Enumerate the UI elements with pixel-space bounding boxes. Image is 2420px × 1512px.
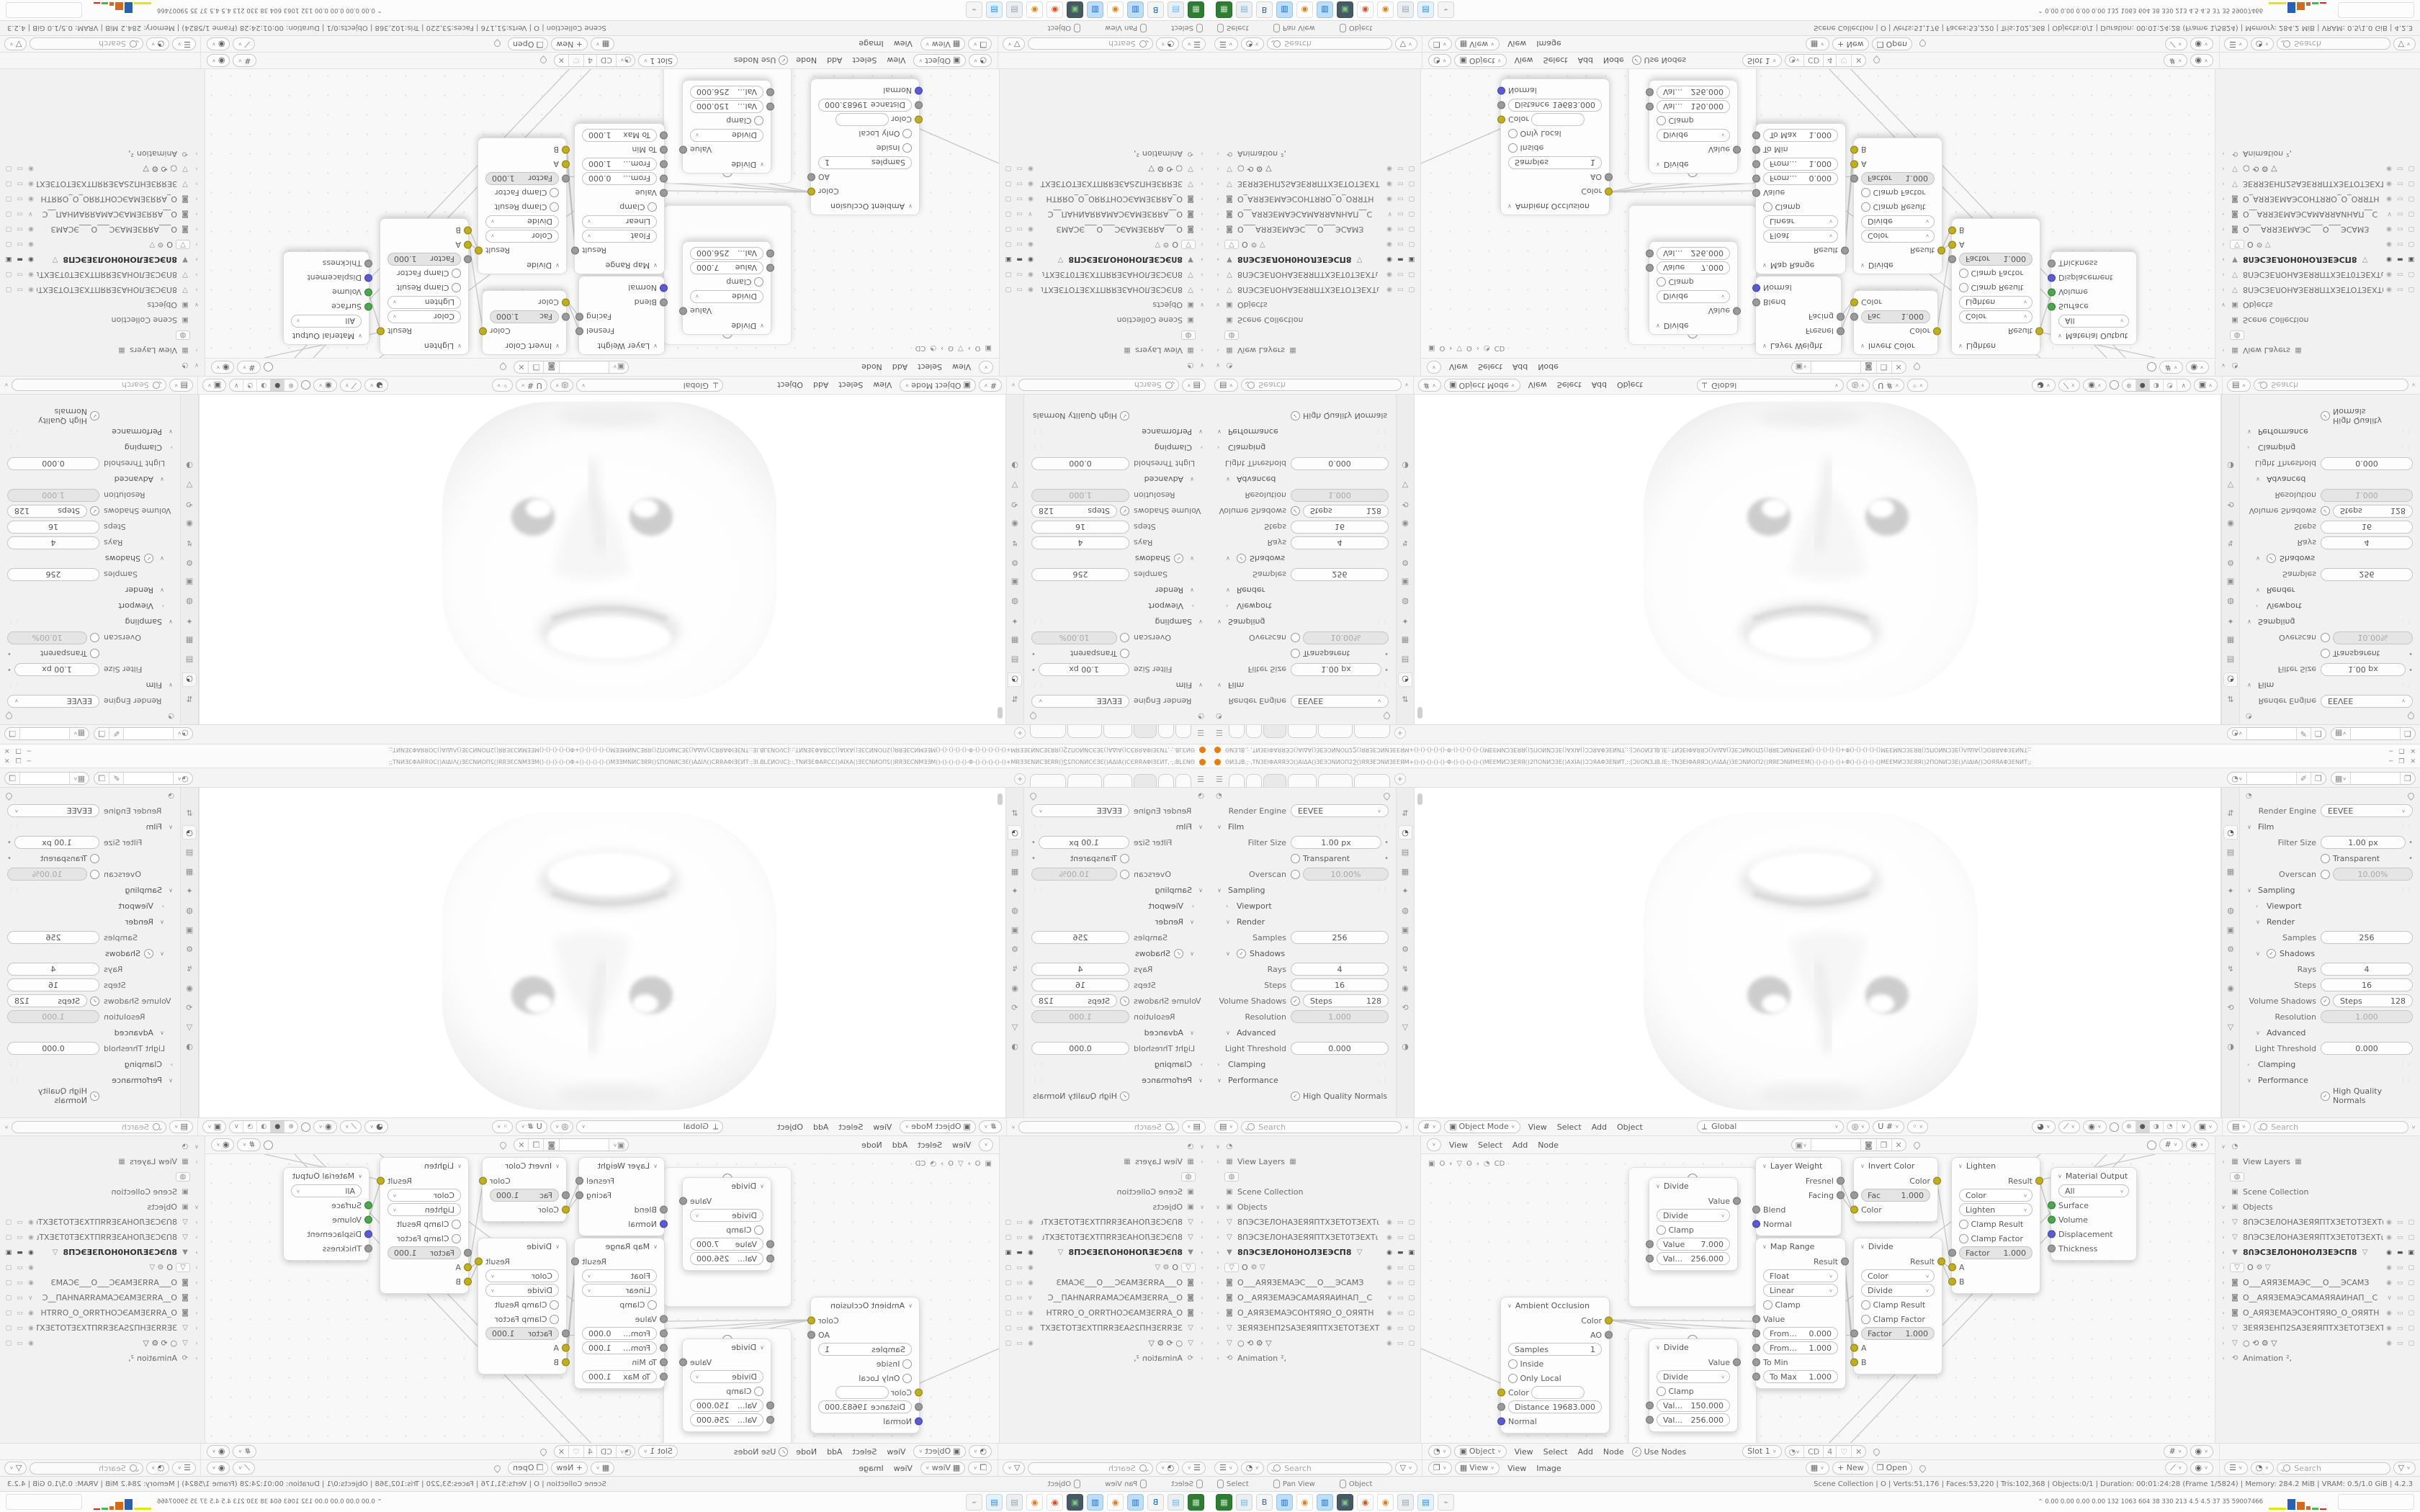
node-checkbox[interactable] [647, 1300, 657, 1310]
expand-caret-icon[interactable]: › [2220, 1295, 2227, 1301]
camera-icon[interactable]: ▢ [2408, 1295, 2414, 1302]
node-footer-menu-node[interactable]: Node [796, 56, 817, 66]
display-mode-button[interactable]: ☰∨ [1214, 37, 1238, 50]
outliner-row-mesh[interactable]: ›▽ЗЕЯЯЗЕНП2SАЗЕЯЯПТХЗЕТОТЗЕХТ◉▭▢ [3, 1320, 200, 1336]
camera-icon[interactable]: ▢ [1408, 196, 1415, 203]
document-app-icon[interactable]: ▤ [1236, 1494, 1252, 1511]
viewport-menu-view[interactable]: View [1528, 1122, 1547, 1132]
outliner-row-camera[interactable]: ›◙O___АЯЯЗЕМАЭС___О___ЭСАМЗ◉▭▢ [2220, 1275, 2417, 1290]
window-button-maximize[interactable]: ❐ [16, 758, 22, 765]
camera-icon[interactable]: ▢ [2408, 1219, 2414, 1226]
archive-app-icon[interactable]: ▤ [1417, 1494, 1434, 1511]
expand-caret-icon[interactable]: › [1214, 347, 1222, 354]
properties-tab-2[interactable]: ▤ [2224, 654, 2237, 667]
collapse-caret-icon[interactable]: ∨ [457, 343, 462, 350]
node-checkbox[interactable] [1508, 144, 1518, 153]
node-field[interactable]: Fac1.000 [490, 1189, 559, 1202]
socket-gray[interactable] [2048, 1245, 2056, 1253]
node-menu-view[interactable]: View [1449, 1140, 1468, 1150]
socket-yellow[interactable] [1605, 188, 1613, 196]
collapse-caret-icon[interactable]: ∨ [1860, 1243, 1865, 1250]
camera-icon[interactable]: ▢ [1005, 271, 1012, 279]
section-caret-icon[interactable]: ∨ [1196, 824, 1203, 830]
socket-gray[interactable] [660, 1315, 668, 1323]
screen-icon[interactable]: ▭ [1017, 1279, 1023, 1287]
add-workspace-button[interactable]: + [1014, 773, 1026, 785]
properties-tab-5[interactable]: ◍ [2224, 904, 2237, 917]
workspace-tab-1[interactable] [1158, 725, 1174, 738]
properties-tab-1[interactable]: ◔ [183, 673, 196, 686]
prop-field[interactable]: 16 [1291, 978, 1389, 991]
visibility-toggles[interactable]: ∨▭▢ [1387, 1295, 1417, 1302]
overlays-button[interactable]: ◉∨ [2190, 1445, 2213, 1458]
hide-eye-icon[interactable]: ◉ [28, 241, 34, 248]
workspace-tab-2[interactable] [1263, 725, 1286, 738]
visibility-gizmos-button[interactable]: ◕∨ [364, 379, 387, 392]
viewlayer-datablock[interactable]: ▦∨❐ [4, 727, 89, 740]
outliner-row-camera[interactable]: ›◙O_АЯЯЗЕМАЭСОНТЯЯО_О_ОЯЯТН◉▭▢ [2220, 1305, 2417, 1320]
socket-yellow[interactable] [1850, 1359, 1858, 1367]
node-field[interactable]: To Max1.000 [582, 1370, 657, 1383]
pin-icon[interactable] [1382, 711, 1391, 721]
node-field[interactable]: Value7.000 [1657, 261, 1730, 274]
node-enum[interactable]: Lighten∨ [1959, 296, 2033, 309]
collapse-caret-icon[interactable]: ∨ [1507, 204, 1512, 210]
viewport-menu-select[interactable]: Select [838, 1122, 863, 1132]
node-editor-menus[interactable]: ViewSelectAddNode [856, 1140, 976, 1150]
expand-caret-icon[interactable]: › [193, 241, 200, 248]
workspace-tab-2[interactable] [1263, 774, 1286, 787]
viewport-menu-add[interactable]: Add [1592, 1122, 1607, 1132]
properties-tab-12[interactable]: ◑ [183, 459, 196, 472]
node-ambient-occlusion[interactable]: ∨Ambient OcclusionColorAOSamples1 Inside… [810, 78, 920, 215]
socket-yellow[interactable] [464, 227, 472, 235]
prop-enum[interactable]: EEVEE∨ [1031, 695, 1129, 708]
expand-caret-icon[interactable]: ∨ [1214, 302, 1222, 308]
node-enum[interactable]: Color∨ [1861, 1269, 1935, 1282]
properties-tab-4[interactable]: ✦ [2224, 615, 2237, 628]
filter-owner-button[interactable]: ◔∨ [146, 37, 169, 50]
screen-icon[interactable]: ▭ [2397, 166, 2403, 173]
notes-app-icon[interactable]: ▤ [1006, 1494, 1023, 1511]
socket-gray[interactable] [1733, 1197, 1741, 1205]
workspace-tab-5[interactable] [1030, 774, 1066, 787]
image-view-dropdown[interactable]: ▦ View∨ [920, 1462, 965, 1475]
outliner-row-camera[interactable]: ›◙O___АЯЯЗЕМАЭС___О___ЭСАМЗ◉▭▢ [2220, 222, 2417, 237]
screen-icon[interactable]: ▭ [2397, 287, 2403, 294]
expand-caret-icon[interactable]: › [1214, 1249, 1222, 1256]
prop-enum[interactable]: EEVEE∨ [7, 695, 99, 708]
collapse-caret-icon[interactable]: ∨ [1762, 1163, 1767, 1169]
node-enum[interactable]: Float∨ [582, 1269, 657, 1282]
screen-icon[interactable]: ▭ [1017, 1295, 1023, 1302]
hide-eye-icon[interactable]: ◉ [2386, 226, 2392, 233]
window-button-minimize[interactable]: ─ [2389, 758, 2393, 765]
outliner-row-mesh[interactable]: ›▽○ ⟲ ⚙ ▽◉▭▢ [1214, 161, 1417, 176]
window-button-maximize[interactable]: ❐ [2398, 747, 2404, 754]
properties-tab-4[interactable]: ✦ [1399, 884, 1412, 897]
socket-gray[interactable] [1752, 132, 1760, 140]
socket-gray[interactable] [1646, 103, 1654, 111]
node-divide[interactable]: ∨DivideValueDivide∨ ClampValue7.000Val..… [1649, 241, 1738, 335]
node-enum[interactable]: Divide∨ [1657, 129, 1730, 142]
expand-caret-icon[interactable]: › [1198, 1295, 1206, 1301]
outliner-row-mesh[interactable]: ›▽ЗЕЯЯЗЕНП2SАЗЕЯЯПТХЗЕТОТЗЕХТ◉▭▢ [2220, 1320, 2417, 1336]
section-caret-icon[interactable]: ∨ [2256, 588, 2263, 594]
collapse-caret-icon[interactable]: ∨ [1762, 263, 1767, 269]
prop-field[interactable]: Steps128 [1031, 505, 1117, 518]
node-divide[interactable]: ∨DivideValueDivide∨ ClampVal...150.000Va… [682, 80, 771, 174]
collapse-caret-icon[interactable]: ∨ [1656, 162, 1660, 168]
hide-eye-icon[interactable]: ◉ [1028, 271, 1034, 279]
overlays-button[interactable]: ◉∨ [207, 37, 230, 50]
node-field[interactable]: Factor1.000 [485, 172, 559, 185]
node-menu-view[interactable]: View [952, 1140, 971, 1150]
editor-type-button[interactable]: #∨ [979, 1120, 1002, 1133]
socket-yellow[interactable] [464, 241, 472, 249]
properties-tab-11[interactable]: ▽ [1399, 1020, 1412, 1033]
snap-magnet-button[interactable]: U #∨ [516, 379, 547, 392]
node-checkbox[interactable] [1763, 203, 1773, 212]
visibility-toggles[interactable]: ◉▭▢ [3, 1219, 34, 1226]
expand-caret-icon[interactable]: › [1198, 181, 1206, 187]
scene-datablock[interactable]: ◔∨✐❐ [94, 772, 193, 785]
camera-icon[interactable]: ▢ [2408, 1264, 2414, 1272]
properties-tab-9[interactable]: ◉ [2224, 518, 2237, 531]
open-image-button[interactable]: ❒ Open [508, 1462, 548, 1475]
camera-icon[interactable]: ▢ [1408, 181, 1415, 188]
window-button-maximize[interactable]: ❐ [2398, 758, 2404, 765]
properties-tab-5[interactable]: ◍ [2224, 595, 2237, 608]
screen-icon[interactable]: ▭ [1397, 181, 1404, 188]
outliner-row-mesh-sel[interactable]: ›▽O⚙ ▽◉▭▢ [2220, 1260, 2417, 1275]
section-caret-icon[interactable]: › [2247, 445, 2254, 451]
section-caret-icon[interactable]: ∨ [1187, 556, 1194, 562]
overlays-button[interactable]: ◉∨ [2186, 361, 2209, 374]
blender-app-icon[interactable]: ◉ [1107, 1494, 1124, 1511]
camera-icon[interactable]: ▢ [6, 241, 12, 248]
section-caret-icon[interactable]: ∨ [2247, 429, 2254, 436]
notes-app-icon[interactable]: ▤ [1397, 2, 1414, 19]
node-field[interactable]: Fac1.000 [1861, 310, 1930, 323]
camera-icon[interactable]: ▢ [2408, 241, 2414, 248]
outliner-row-mesh[interactable]: ›▽8ՈЭСЗЕЛОНАЗЕЯЯПТХЗЕТ0ТЗЕХТι◉▭▢ [1214, 1230, 1417, 1245]
overlays-button[interactable]: ◉∨ [2190, 1462, 2213, 1475]
workspace-tab-2[interactable] [1134, 774, 1157, 787]
taskbar-app-icons[interactable]: ▦▤B▥◉▥▣◉◉▤▤⌁ [1216, 1494, 1454, 1511]
section-caret-icon[interactable]: ∨ [2247, 683, 2254, 689]
prop-field[interactable]: 4 [1291, 963, 1389, 976]
prop-field[interactable]: 10.00% [1031, 868, 1117, 881]
hide-eye-icon[interactable]: ◉ [1028, 196, 1034, 203]
collapse-caret-icon[interactable]: ∨ [2058, 333, 2062, 340]
hide-eye-icon[interactable]: ◉ [1028, 1219, 1034, 1226]
visibility-toggles[interactable]: ◉▬▣ [3, 1249, 34, 1256]
shading-mode-0[interactable]: ⊕ [284, 379, 297, 391]
prop-field[interactable]: Steps128 [2333, 505, 2413, 518]
node-footer-menu-add[interactable]: Add [827, 1447, 842, 1457]
hide-eye-icon[interactable]: ◉ [28, 1219, 34, 1226]
prop-checkbox[interactable] [1120, 854, 1129, 863]
window-button-maximize[interactable]: ❐ [16, 747, 22, 754]
workspace-tab-4[interactable] [1318, 725, 1353, 738]
properties-tab-0[interactable]: ⇵ [183, 806, 196, 819]
collapse-caret-icon[interactable]: ∨ [760, 1183, 764, 1189]
section-caret-icon[interactable]: ∨ [1217, 619, 1224, 626]
node-checkbox[interactable] [452, 284, 461, 293]
socket-gray[interactable] [1850, 1330, 1858, 1338]
animate-dot[interactable]: • [2408, 666, 2413, 674]
prop-field[interactable]: 0.000 [7, 1042, 99, 1055]
socket-gray[interactable] [807, 174, 815, 181]
outliner-row-mesh[interactable]: ›▽○ ⟲ ⚙ ▽◉▭▢ [1003, 161, 1206, 176]
expand-caret-icon[interactable]: ∨ [193, 362, 200, 369]
section-caret-icon[interactable]: ∨ [1187, 950, 1194, 957]
viewport-3d[interactable] [199, 788, 1005, 1117]
animate-dot[interactable]: • [7, 839, 12, 847]
prop-field[interactable]: 10.00% [2333, 868, 2413, 881]
prop-enum[interactable]: EEVEE∨ [1291, 804, 1389, 817]
expand-caret-icon[interactable]: › [1198, 1279, 1206, 1286]
visibility-toggles[interactable]: ◉▭▢ [3, 181, 34, 188]
terminal-app-icon[interactable]: ▦ [1216, 1494, 1232, 1511]
outliner-row-mesh-sel[interactable]: ›▽O⚙ ▽◉▭▢ [1214, 237, 1417, 252]
properties-tab-8[interactable]: ↯ [2224, 962, 2237, 975]
shading-dropdown-button[interactable]: ▣∨ [202, 379, 226, 392]
screen-icon[interactable]: ▭ [17, 1279, 24, 1287]
socket-gray[interactable] [660, 1359, 668, 1367]
shader-context-dropdown[interactable]: ▣ Object∨ [1454, 1445, 1506, 1458]
shading-mode-3[interactable]: ◔ [2164, 379, 2177, 391]
visibility-toggles[interactable]: ◉▭▢ [1003, 226, 1034, 233]
socket-gray[interactable] [1733, 307, 1741, 315]
section-caret-icon[interactable]: › [1196, 445, 1203, 451]
camera-icon[interactable]: ▢ [1408, 1264, 1415, 1272]
properties-tabstrip-left[interactable]: ⇵◔▤▦✦◍▣⚙↯◉⟲▽◑ [1005, 395, 1023, 724]
node-field[interactable]: Samples1 [818, 1343, 912, 1356]
outliner-row-camera[interactable]: ›◙O__АЯЯЗЕМАЭСАМАЯЯАИНАП__С∨▭▢ [2220, 207, 2417, 222]
socket-gray[interactable] [364, 260, 372, 268]
expand-caret-icon[interactable]: › [1214, 1310, 1222, 1316]
screen-icon[interactable]: ▭ [2397, 211, 2403, 218]
properties-tab-8[interactable]: ↯ [1008, 537, 1021, 550]
properties-tab-7[interactable]: ⚙ [2224, 557, 2237, 570]
camera-icon[interactable]: ▢ [2408, 211, 2414, 218]
tray-widget[interactable] [2338, 1494, 2414, 1510]
hide-eye-icon[interactable]: ◉ [1386, 1279, 1392, 1287]
animate-dot[interactable]: • [7, 650, 12, 658]
collapse-caret-icon[interactable]: ∨ [908, 204, 913, 210]
node-editor-menus[interactable]: ViewSelectAddNode [1444, 363, 1564, 372]
expand-caret-icon[interactable]: › [2220, 181, 2227, 187]
hide-eye-icon[interactable]: ◉ [1386, 1219, 1392, 1226]
node-layer-weight[interactable]: ∨Layer WeightFresnelFacingBlendNormal [1755, 1157, 1842, 1236]
node-checkbox[interactable] [1959, 1234, 1968, 1243]
firefox-app-icon[interactable]: ◉ [1047, 1494, 1063, 1511]
screen-icon[interactable]: ▭ [17, 271, 24, 279]
editor-type-button[interactable]: ▤∨ [1214, 379, 1238, 392]
section-caret-icon[interactable]: › [2256, 603, 2263, 610]
camera-icon[interactable]: ▣ [2408, 256, 2414, 264]
expand-caret-icon[interactable]: › [1198, 166, 1206, 172]
section-caret-icon[interactable]: ∨ [1187, 1030, 1194, 1036]
node-checkbox[interactable] [902, 130, 912, 139]
prop-checkbox[interactable] [2321, 870, 2330, 879]
properties-tab-6[interactable]: ▣ [1008, 576, 1021, 589]
socket-gray[interactable] [575, 313, 583, 321]
image-datablock-button[interactable]: ▦∨ [1806, 37, 1829, 50]
animate-dot[interactable]: • [1384, 839, 1389, 847]
hide-eye-icon[interactable]: ◉ [2386, 271, 2392, 279]
monitor-app-icon[interactable]: ▣ [1067, 2, 1083, 19]
collapse-caret-icon[interactable]: ∨ [1762, 343, 1767, 350]
socket-gray[interactable] [1752, 1206, 1760, 1214]
outliner-row-collection[interactable]: ∨▣Objects [1003, 297, 1206, 312]
node-enum[interactable]: Float∨ [1763, 1269, 1838, 1282]
snap-target-button[interactable]: ◎∨ [1847, 379, 1870, 392]
outliner-row-camera[interactable]: ›◙O___АЯЯЗЕМАЭС___О___ЭСАМЗ◉▭▢ [1003, 1275, 1206, 1290]
camera-icon[interactable]: ▢ [1408, 241, 1415, 248]
document-app-icon[interactable]: ▤ [1168, 1494, 1184, 1511]
firefox-app-icon[interactable]: ◉ [1357, 2, 1373, 19]
node-material-output[interactable]: ∨Material OutputAll∨SurfaceVolumeDisplac… [283, 1167, 369, 1261]
camera-icon[interactable]: ▢ [1005, 1264, 1012, 1272]
camera-icon[interactable]: ▣ [1005, 1249, 1012, 1256]
screen-icon[interactable]: ▭ [1397, 1264, 1404, 1272]
expand-caret-icon[interactable]: › [1214, 1264, 1222, 1271]
prop-checkbox[interactable] [90, 854, 99, 863]
section-checkbox[interactable] [144, 554, 153, 564]
expand-caret-icon[interactable]: › [2220, 1325, 2227, 1331]
mode-dropdown[interactable]: ▣ Object Mode∨ [1444, 379, 1520, 392]
properties-tab-7[interactable]: ⚙ [2224, 942, 2237, 955]
visibility-toggles[interactable]: ◉▭▢ [3, 226, 34, 233]
expand-caret-icon[interactable]: › [1214, 271, 1222, 278]
hide-eye-icon[interactable]: ◉ [1028, 1264, 1034, 1272]
expand-caret-icon[interactable]: › [1198, 1158, 1206, 1165]
outliner-row-camera[interactable]: ›◙O__АЯЯЗЕМАЭСАМАЯЯАИНАП__С∨▭▢ [1214, 207, 1417, 222]
expand-caret-icon[interactable]: › [2220, 1249, 2227, 1256]
viewport-toolbar-handle[interactable] [998, 793, 1003, 805]
properties-tab-10[interactable]: ⟲ [1399, 498, 1412, 511]
monitor-app-icon[interactable]: ▣ [1337, 1494, 1353, 1511]
gizmo-button[interactable]: ⟋∨ [233, 1462, 255, 1475]
workspace-tab-5[interactable] [1354, 774, 1390, 787]
viewlayer-datablock[interactable]: ▦∨❐ [2331, 772, 2416, 785]
workspace-tab-1[interactable] [1246, 774, 1262, 787]
workspace-tab-3[interactable] [1103, 725, 1132, 738]
camera-icon[interactable]: ▢ [6, 1264, 12, 1272]
expand-caret-icon[interactable]: › [1198, 1234, 1206, 1241]
node-field[interactable]: Samples1 [1508, 156, 1602, 169]
mode-dropdown[interactable]: ▣ Object Mode∨ [1444, 1120, 1520, 1133]
expand-caret-icon[interactable]: › [1214, 1340, 1222, 1346]
section-caret-icon[interactable]: ∨ [2256, 556, 2263, 562]
shading-mode-2[interactable]: ◑ [2150, 1121, 2164, 1133]
expand-caret-icon[interactable]: › [1214, 241, 1222, 248]
prop-field[interactable]: 1.000 [1291, 489, 1389, 502]
expand-caret-icon[interactable]: › [193, 181, 200, 187]
node-checkbox[interactable] [1657, 1387, 1666, 1396]
node-checkbox[interactable] [1508, 1374, 1518, 1383]
visibility-toggles[interactable]: ◉▭▢ [2386, 271, 2417, 279]
properties-tab-11[interactable]: ▽ [183, 479, 196, 492]
prop-field[interactable]: 1.000 [1291, 1010, 1389, 1023]
properties-tab-11[interactable]: ▽ [183, 1020, 196, 1033]
socket-gray[interactable] [1497, 102, 1505, 109]
hide-eye-icon[interactable]: ◉ [2386, 1219, 2392, 1226]
expand-caret-icon[interactable]: ∨ [193, 302, 200, 308]
section-caret-icon[interactable]: ∨ [2247, 887, 2254, 894]
search-input[interactable]: Search [12, 1121, 166, 1133]
outliner-search-input[interactable]: Search [1028, 38, 1152, 50]
prop-checkbox[interactable] [2321, 854, 2330, 863]
section-caret-icon[interactable]: ∨ [1187, 919, 1194, 925]
expand-caret-icon[interactable]: › [1214, 1355, 1222, 1362]
calculator2-app-icon[interactable]: ▥ [1087, 2, 1103, 19]
socket-green[interactable] [2048, 289, 2056, 297]
prop-field[interactable]: 4 [7, 536, 99, 549]
prop-field[interactable]: 256 [1291, 568, 1389, 581]
outliner-row-mesh[interactable]: ›▽○ ⟲ ⚙ ▽◉▭▢ [1003, 1336, 1206, 1351]
screen-icon[interactable]: ▭ [2397, 1264, 2403, 1272]
screen-icon[interactable]: ▭ [17, 1264, 24, 1272]
shading-mode-0[interactable]: ⊕ [284, 1121, 297, 1133]
pin-icon[interactable] [4, 791, 14, 801]
outliner-search-input[interactable]: Search [1267, 1462, 1391, 1475]
outliner-row-mesh[interactable]: ›▽ЗЕЯЯЗЕНП2SАЗЕЯЯПТХЗЕТОТЗЕХТ◉▭▢ [2220, 176, 2417, 192]
overlays-button[interactable]: ◉∨ [2083, 379, 2106, 392]
screen-icon[interactable]: ▭ [2397, 1295, 2403, 1302]
bluefish-app-icon[interactable]: B [1256, 2, 1273, 19]
screen-icon[interactable]: ▭ [2397, 241, 2403, 248]
node-field[interactable]: Distance19683.000 [1508, 1400, 1602, 1413]
socket-yellow[interactable] [479, 1177, 487, 1185]
node-checkbox[interactable] [1657, 278, 1666, 287]
proportional-edit-button[interactable]: ◦∨ [492, 379, 513, 392]
material-slot-datablock[interactable]: ◔∨ CD 4 ♡✕ [554, 54, 636, 67]
socket-yellow[interactable] [377, 1177, 385, 1185]
expand-caret-icon[interactable]: › [1214, 1295, 1222, 1301]
properties-tab-10[interactable]: ⟲ [1008, 498, 1021, 511]
snap-button[interactable]: #∨ [237, 361, 260, 374]
visibility-toggles[interactable]: ◉▭▢ [1003, 1234, 1034, 1241]
outliner-row-collection[interactable]: ▣Scene Collection [2220, 312, 2417, 328]
editor-type-button[interactable]: #∨ [1418, 1120, 1441, 1133]
prop-field[interactable]: 4 [2321, 963, 2413, 976]
expand-caret-icon[interactable]: › [1198, 1249, 1206, 1256]
proportional-edit-button[interactable]: ◦∨ [1907, 1120, 1928, 1133]
node-footer-menu-select[interactable]: Select [852, 1447, 877, 1457]
visibility-toggles[interactable]: ◉▭▢ [3, 1279, 34, 1287]
node-enum[interactable]: Divide∨ [690, 129, 763, 142]
node-field[interactable]: Val...256.000 [690, 247, 763, 260]
viewport-menu-add[interactable]: Add [1592, 381, 1607, 390]
socket-gray[interactable] [464, 256, 472, 264]
shading-mode-buttons[interactable]: ⊕●◑◔∨ [2122, 379, 2191, 392]
slot-dropdown[interactable]: Slot 1∨ [638, 1445, 677, 1458]
properties-tabstrip-left[interactable]: ⇵◔▤▦✦◍▣⚙↯◉⟲▽◑ [1005, 788, 1023, 1117]
section-caret-icon[interactable]: ∨ [157, 588, 164, 594]
properties-tab-3[interactable]: ▦ [183, 634, 196, 647]
bluefish-app-icon[interactable]: B [1256, 1494, 1273, 1511]
document-app-icon[interactable]: ▤ [1236, 2, 1252, 19]
node-field[interactable]: Val...150.000 [1657, 100, 1730, 113]
calculator-app-icon[interactable]: ▥ [1127, 1494, 1144, 1511]
viewport-menu-object[interactable]: Object [1617, 381, 1643, 390]
section-caret-icon[interactable]: › [1196, 1061, 1203, 1068]
outliner-row-camera[interactable]: ›◙O___АЯЯЗЕМАЭС___О___ЭСАМЗ◉▭▢ [3, 1275, 200, 1290]
